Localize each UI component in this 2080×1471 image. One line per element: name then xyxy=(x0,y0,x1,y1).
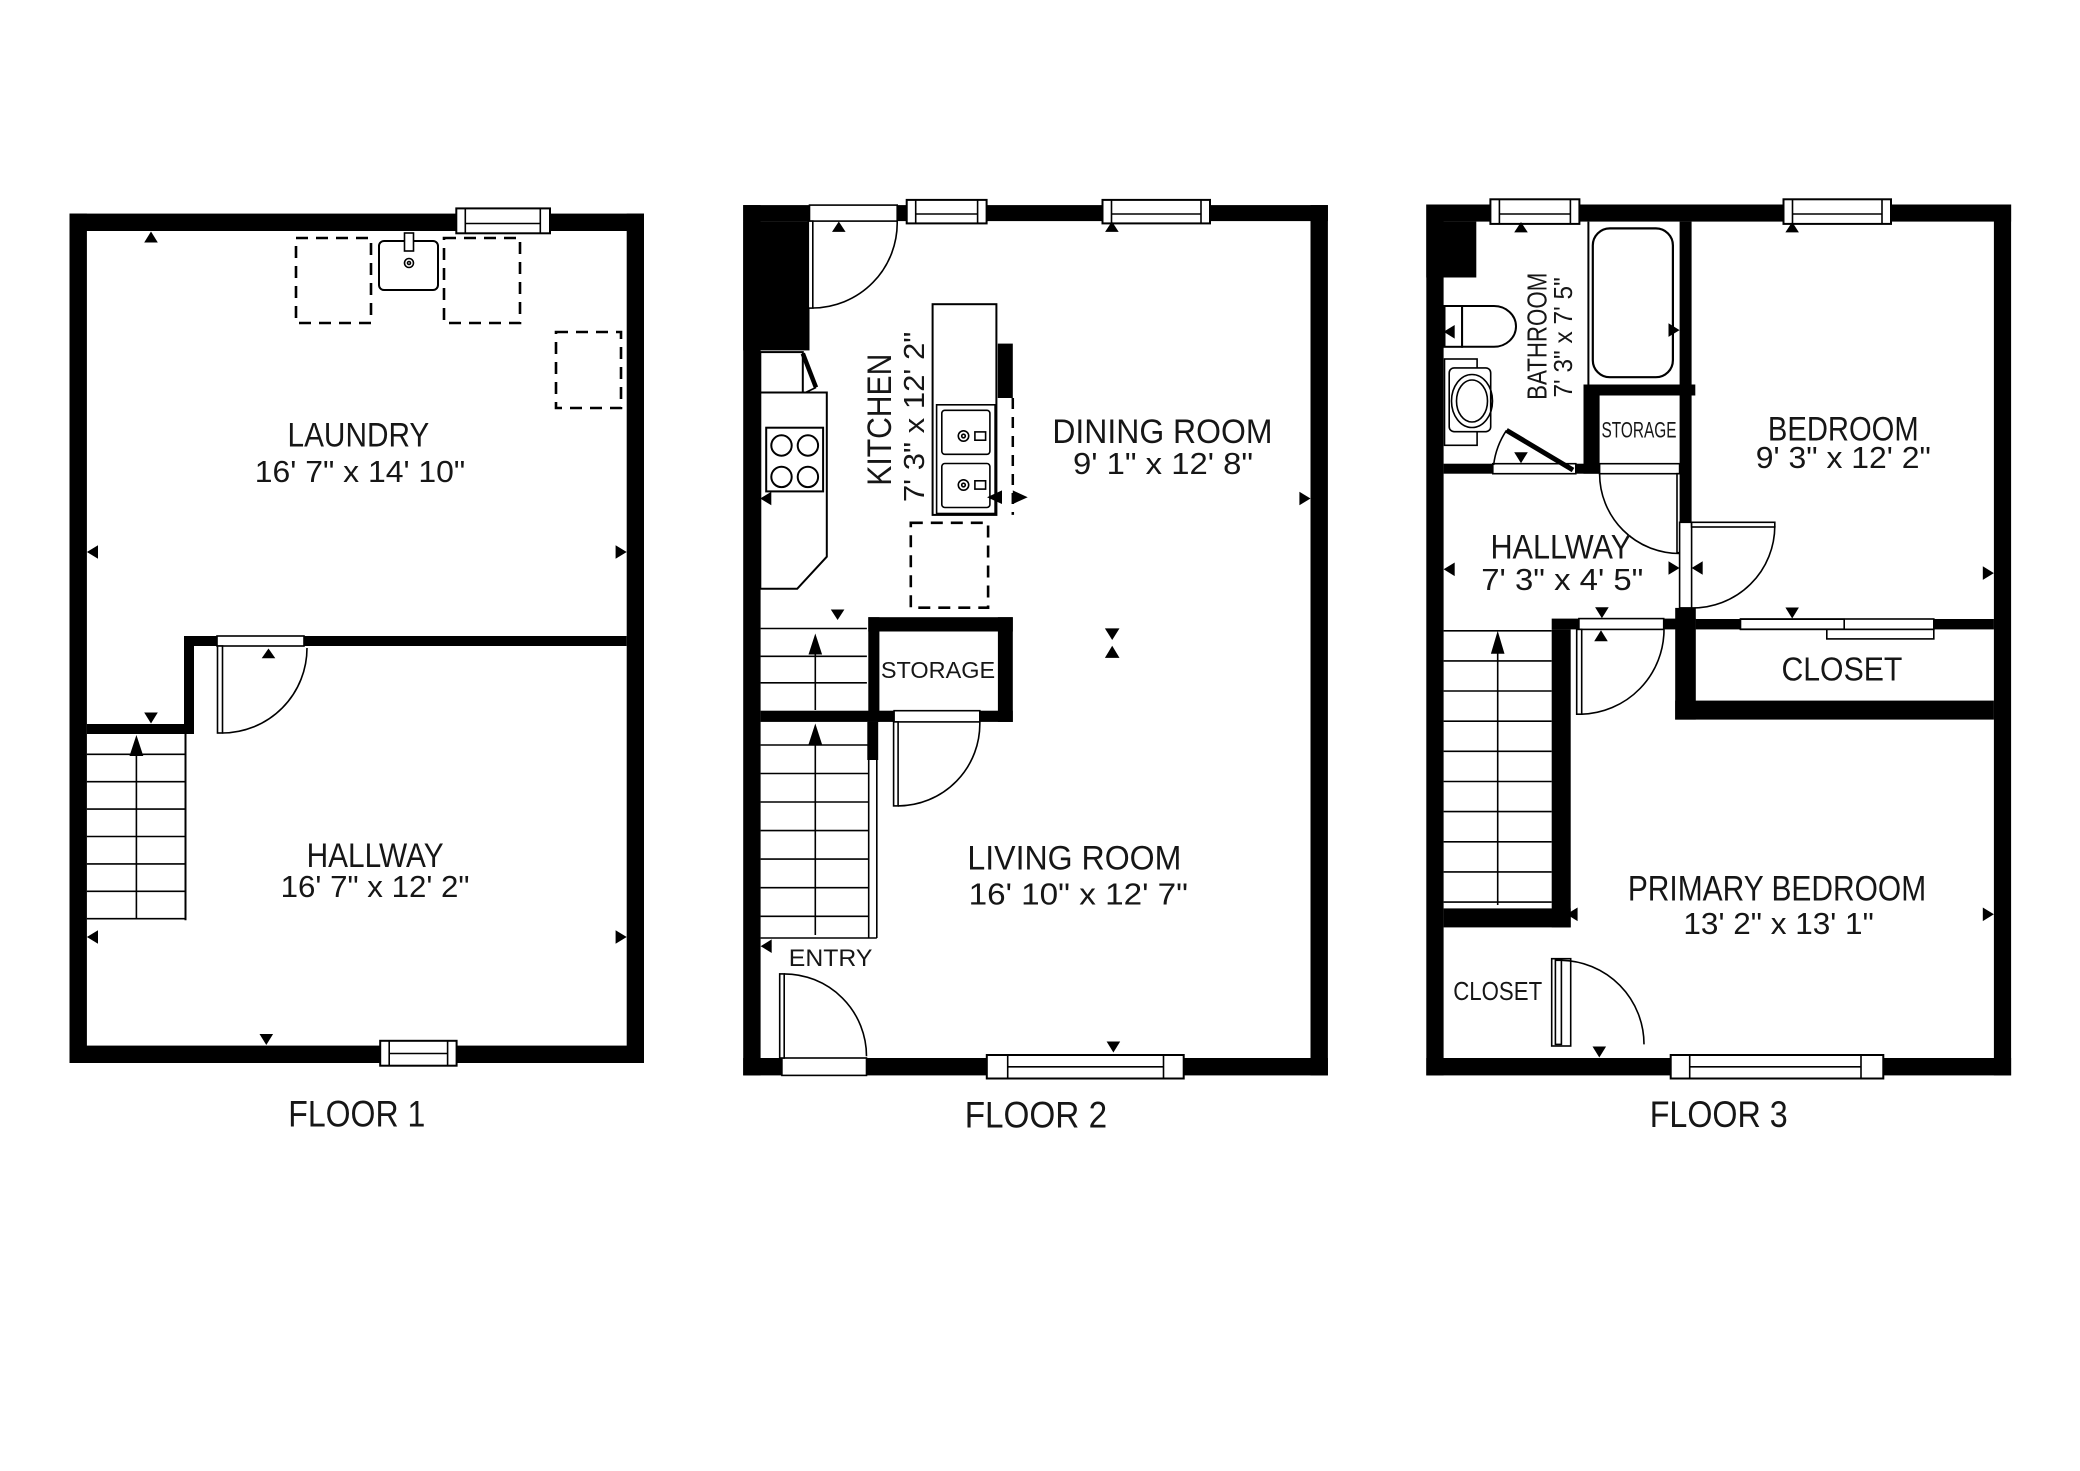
svg-text:LAUNDRY: LAUNDRY xyxy=(288,417,430,455)
svg-text:ENTRY: ENTRY xyxy=(789,945,873,972)
svg-text:7' 3" x 4' 5": 7' 3" x 4' 5" xyxy=(1481,562,1643,597)
svg-text:PRIMARY BEDROOM: PRIMARY BEDROOM xyxy=(1628,870,1926,909)
svg-text:CLOSET: CLOSET xyxy=(1781,650,1902,687)
svg-text:STORAGE: STORAGE xyxy=(881,657,995,683)
svg-text:CLOSET: CLOSET xyxy=(1453,976,1542,1006)
svg-text:9' 1" x 12' 8": 9' 1" x 12' 8" xyxy=(1073,446,1253,481)
svg-text:HALLWAY: HALLWAY xyxy=(1490,529,1631,567)
svg-text:FLOOR 2: FLOOR 2 xyxy=(965,1094,1107,1135)
svg-text:9' 3" x 12' 2": 9' 3" x 12' 2" xyxy=(1756,440,1931,475)
svg-text:STORAGE: STORAGE xyxy=(1602,418,1677,443)
svg-text:FLOOR 1: FLOOR 1 xyxy=(288,1094,425,1135)
svg-text:FLOOR 3: FLOOR 3 xyxy=(1650,1094,1788,1135)
svg-text:7' 3" x 7' 5": 7' 3" x 7' 5" xyxy=(1548,277,1578,397)
svg-text:16' 10" x 12' 7": 16' 10" x 12' 7" xyxy=(969,877,1188,912)
svg-text:KITCHEN: KITCHEN xyxy=(861,354,899,486)
svg-text:LIVING ROOM: LIVING ROOM xyxy=(967,840,1181,878)
svg-text:16' 7" x 12' 2": 16' 7" x 12' 2" xyxy=(281,869,470,904)
svg-text:13' 2" x 13' 1": 13' 2" x 13' 1" xyxy=(1683,906,1873,941)
svg-text:7' 3" x 12' 2": 7' 3" x 12' 2" xyxy=(899,332,931,503)
svg-text:16' 7" x 14' 10": 16' 7" x 14' 10" xyxy=(255,454,466,489)
